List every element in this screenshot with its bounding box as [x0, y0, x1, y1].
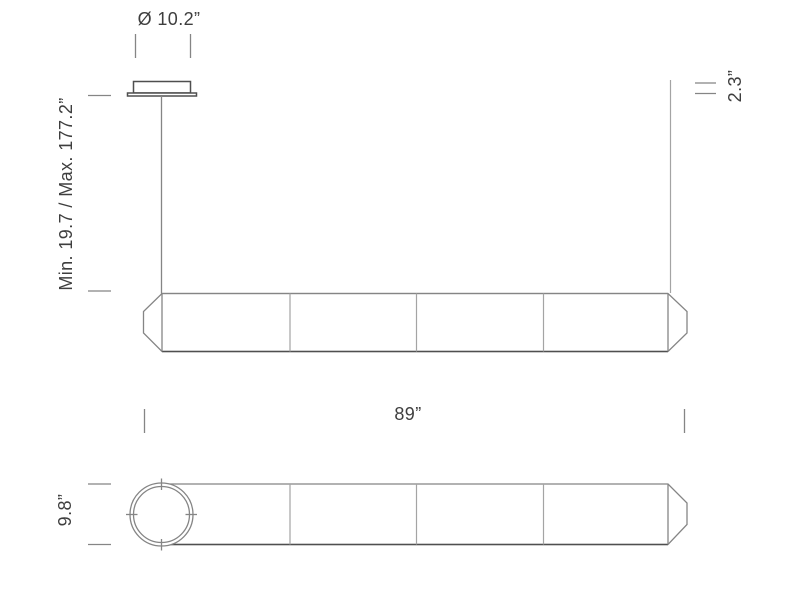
front-body-outline: [162, 484, 688, 545]
canopy-base-plate: [128, 93, 197, 96]
canopy-diameter-label: Ø 10.2”: [138, 10, 201, 28]
canopy-diameter-ticks: [136, 34, 191, 58]
canopy-body: [134, 82, 191, 94]
fixture-height-ticks: [88, 484, 111, 545]
canopy-height-ticks: [695, 83, 716, 94]
lamp-body-front-view: [126, 479, 687, 551]
body-outline: [144, 294, 688, 352]
suspension-range-label: Min. 19.7 / Max. 177.2”: [57, 97, 75, 290]
drawing-linework: [0, 0, 800, 595]
tube-end-outer-ring: [130, 483, 193, 546]
dimension-drawing-canvas: Ø 10.2” Min. 19.7 / Max. 177.2” 2.3” 89”…: [0, 0, 800, 595]
canopy-height-label: 2.3”: [726, 70, 744, 103]
suspension-range-ticks: [88, 96, 111, 292]
fixture-length-label: 89”: [394, 405, 421, 423]
lamp-body-side-view: [144, 294, 688, 352]
fixture-height-label: 9.8”: [56, 494, 74, 527]
canopy: [128, 82, 197, 97]
